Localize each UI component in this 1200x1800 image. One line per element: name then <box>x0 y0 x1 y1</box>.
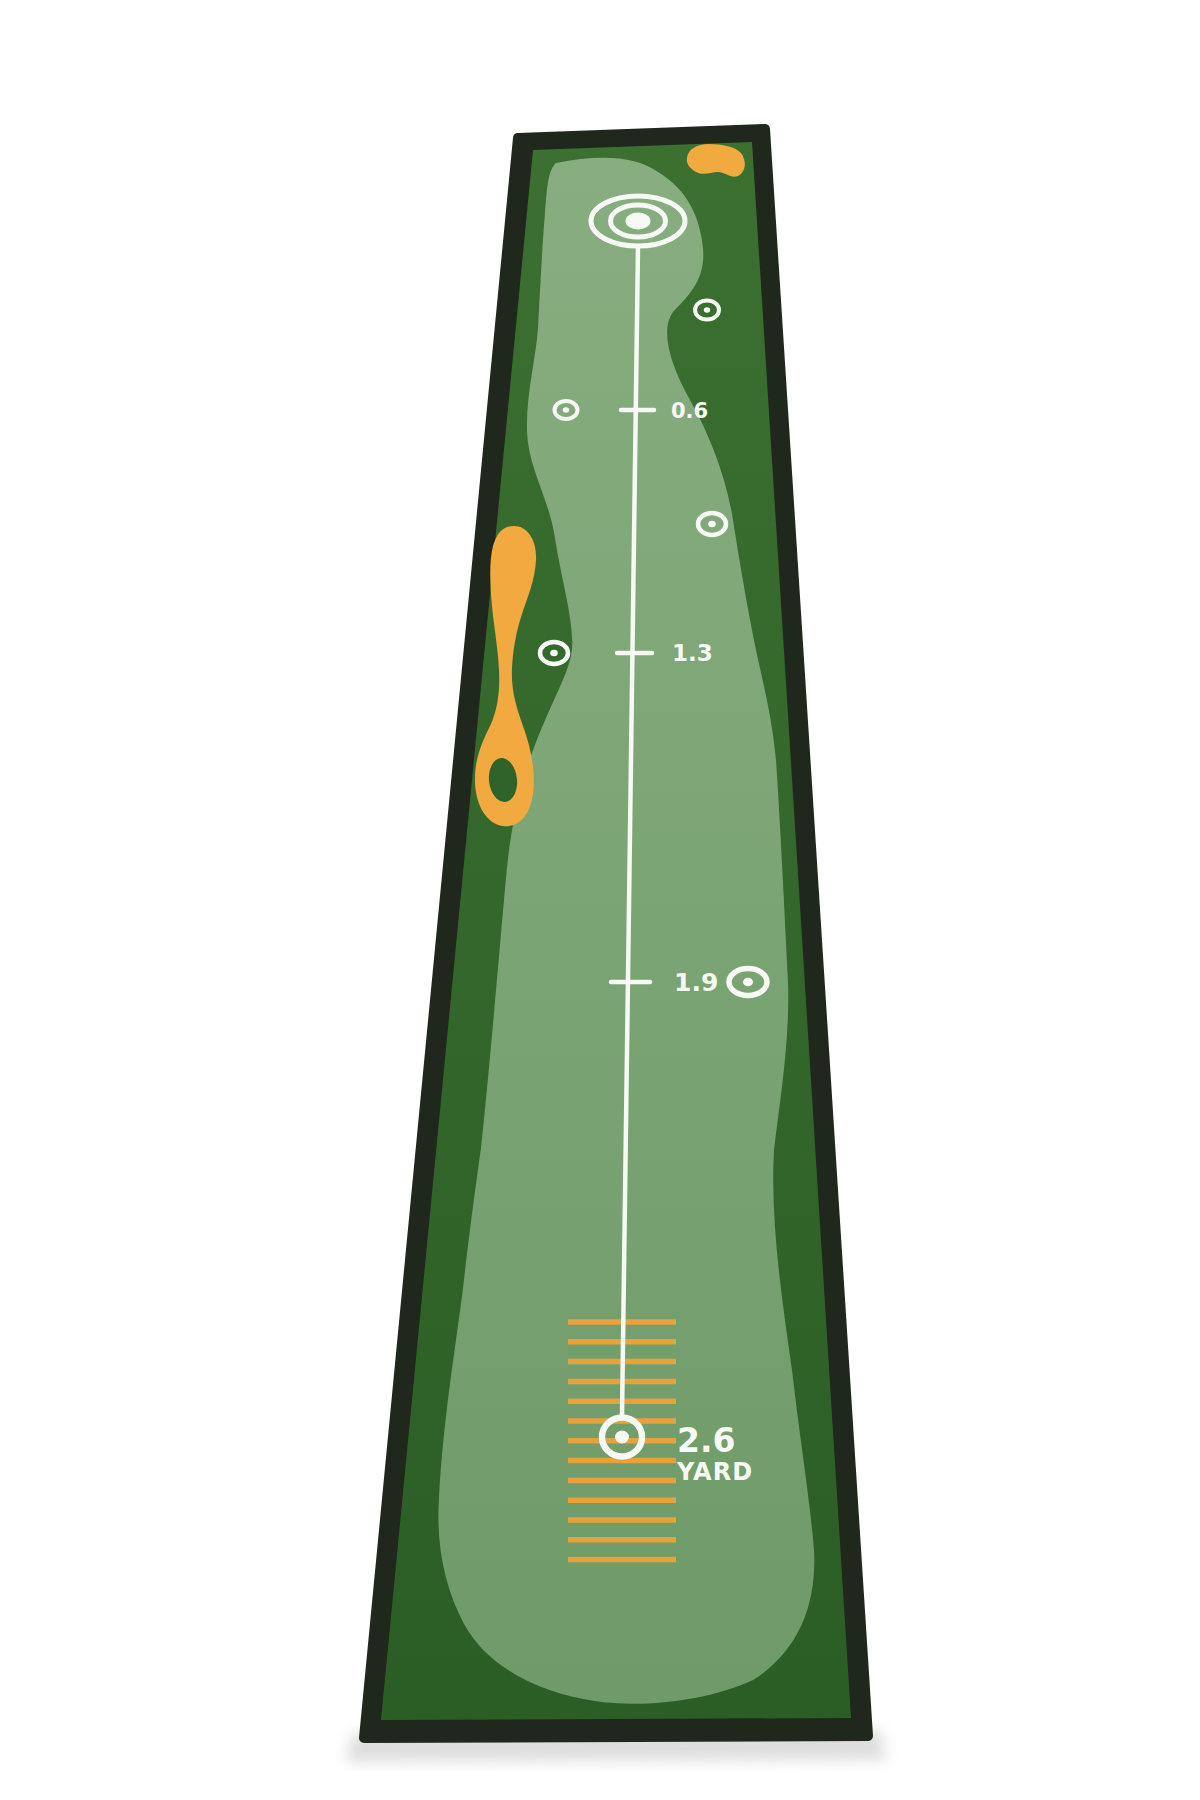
product-photo: 0.61.31.9 2.6 YARD <box>0 0 1200 1800</box>
distance-label: 1.3 <box>672 640 713 666</box>
distance-label: 0.6 <box>671 399 708 423</box>
marker-dot <box>708 521 716 527</box>
distance-label: 1.9 <box>674 968 718 997</box>
start-target-core <box>626 213 651 230</box>
final-distance-value: 2.6 <box>677 1421 735 1460</box>
final-distance-unit: YARD <box>676 1458 753 1486</box>
marker-dot <box>743 978 753 987</box>
putting-mat: 0.61.31.9 2.6 YARD <box>0 0 1200 1800</box>
end-target-dot <box>615 1430 629 1443</box>
marker-dot <box>704 307 710 312</box>
marker-dot <box>550 650 558 656</box>
marker-dot <box>563 407 569 412</box>
